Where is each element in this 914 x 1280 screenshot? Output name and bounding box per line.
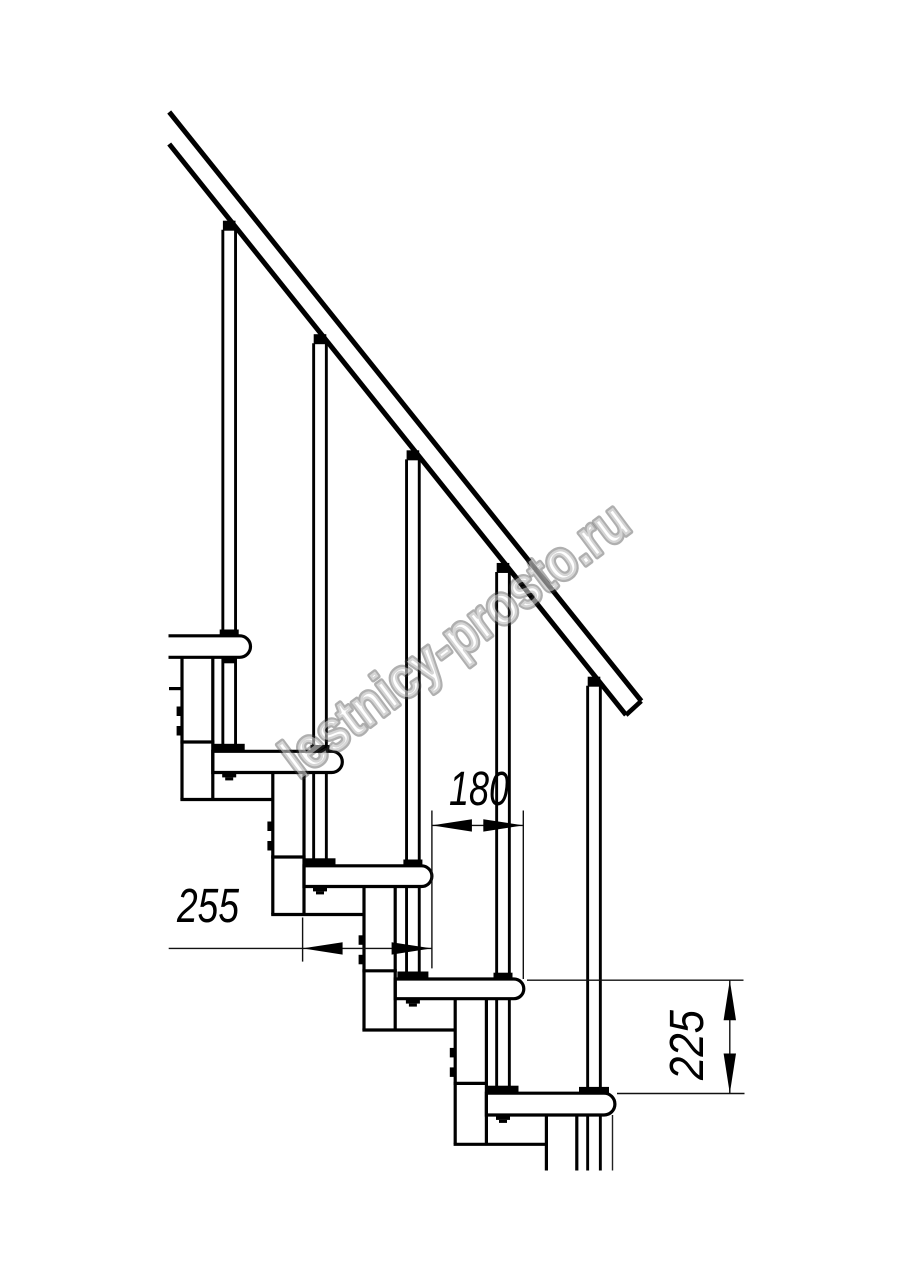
- svg-text:225: 225: [661, 1010, 714, 1081]
- svg-text:180: 180: [449, 763, 509, 816]
- svg-text:lestnicy-prosto.ru: lestnicy-prosto.ru: [268, 489, 641, 791]
- svg-text:255: 255: [176, 880, 239, 933]
